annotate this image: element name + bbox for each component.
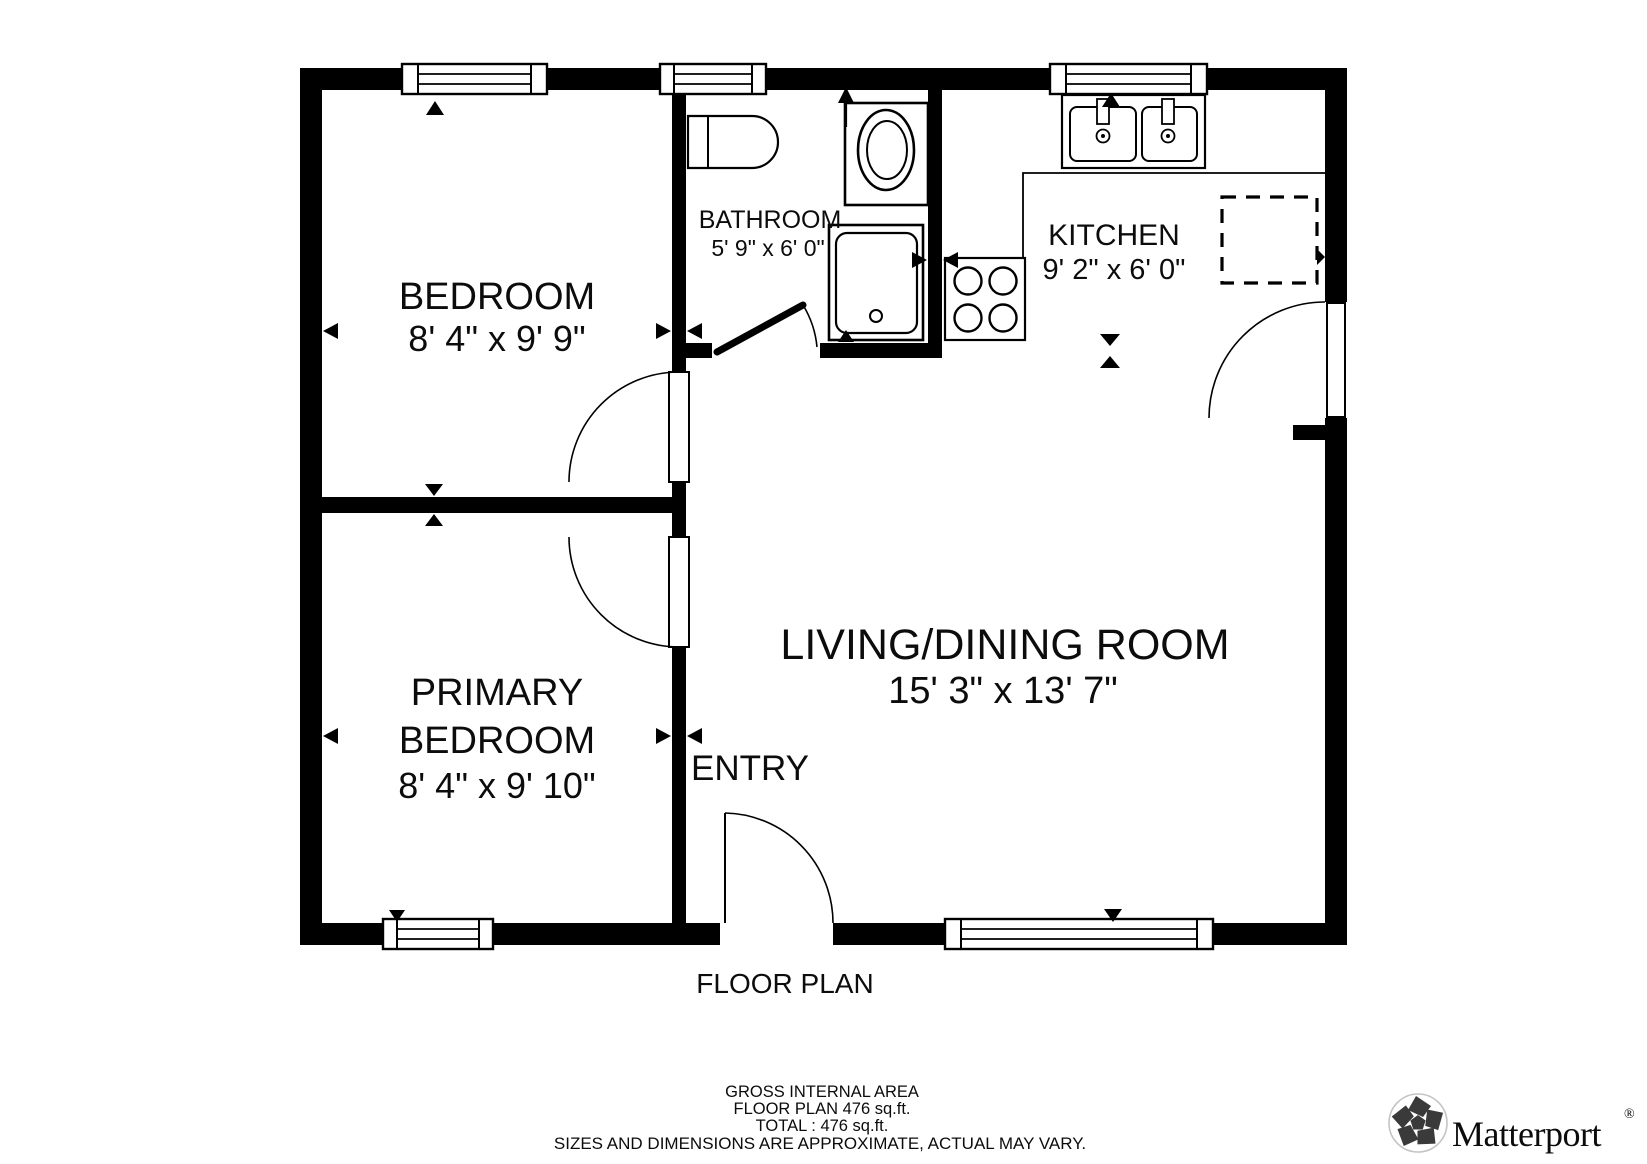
primary-bedroom-dimensions: 8' 4" x 9' 10" <box>398 765 595 806</box>
wall-bathroom-bottom-right <box>820 343 942 358</box>
bathroom-dimensions: 5' 9" x 6' 0" <box>711 235 824 261</box>
matterport-logo-text: Matterport <box>1452 1114 1601 1154</box>
window-bedroom <box>402 64 547 94</box>
wall-right <box>1325 68 1347 945</box>
wall-bathroom-kitchen <box>928 90 942 358</box>
disclaimer-text: SIZES AND DIMENSIONS ARE APPROXIMATE, AC… <box>554 1134 1086 1153</box>
window-kitchen <box>1050 64 1207 94</box>
kitchen-sink-icon <box>1062 95 1205 168</box>
total-area: TOTAL : 476 sq.ft. <box>756 1117 889 1135</box>
floor-plan-canvas: BEDROOM 8' 4" x 9' 9" BATHROOM 5' 9" x 6… <box>0 0 1647 1164</box>
window-primary-bedroom <box>383 919 493 949</box>
floor-plan-page: BEDROOM 8' 4" x 9' 9" BATHROOM 5' 9" x 6… <box>0 0 1647 1164</box>
shower-icon <box>829 225 923 340</box>
kitchen-dimensions: 9' 2" x 6' 0" <box>1043 254 1186 286</box>
entry-label: ENTRY <box>691 749 809 788</box>
floor-plan-title: FLOOR PLAN <box>696 968 873 999</box>
window-living-room <box>945 919 1213 949</box>
matterport-logo-icon <box>1389 1094 1448 1152</box>
living-dining-dimensions: 15' 3" x 13' 7" <box>888 670 1118 712</box>
stove-icon <box>945 258 1025 340</box>
bedroom-label: BEDROOM <box>399 276 595 318</box>
toilet-icon <box>688 116 778 168</box>
primary-bedroom-label-line1: PRIMARY <box>411 672 583 714</box>
window-bathroom <box>660 64 766 94</box>
registered-mark: ® <box>1624 1107 1635 1122</box>
wall-bathroom-bottom-left <box>686 343 712 358</box>
bathroom-label: BATHROOM <box>699 206 842 234</box>
floor-plan-area: FLOOR PLAN 476 sq.ft. <box>734 1100 911 1118</box>
kitchen-label: KITCHEN <box>1048 219 1180 252</box>
wall-kitchen-stub <box>1293 425 1325 440</box>
bedroom-dimensions: 8' 4" x 9' 9" <box>408 318 585 359</box>
gross-internal-area-label: GROSS INTERNAL AREA <box>725 1083 919 1101</box>
primary-bedroom-label-line2: BEDROOM <box>399 720 595 762</box>
wall-bedroom-divider <box>300 497 686 513</box>
living-dining-label: LIVING/DINING ROOM <box>780 621 1229 669</box>
washer-icon <box>845 103 928 205</box>
